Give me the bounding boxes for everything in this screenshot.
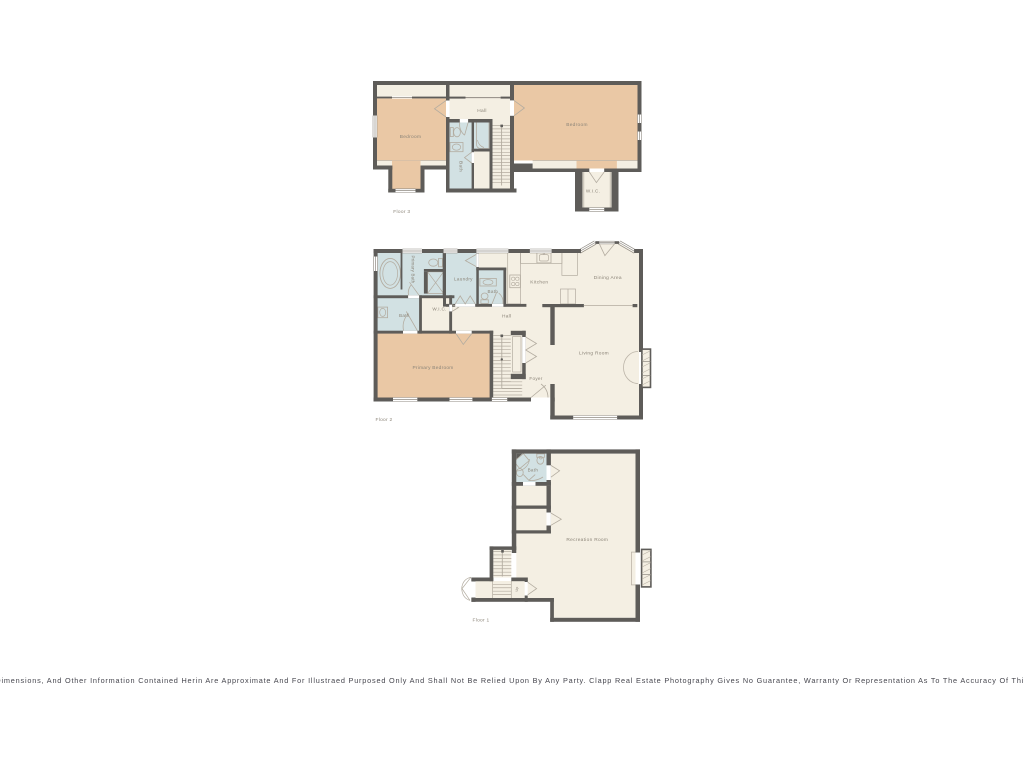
svg-text:W.I.C.: W.I.C. (432, 307, 446, 312)
svg-text:Foyer: Foyer (529, 376, 542, 381)
svg-text:Floor 1: Floor 1 (472, 617, 489, 623)
svg-text:Hall: Hall (477, 108, 486, 114)
svg-text:Primary Bath: Primary Bath (411, 256, 416, 284)
svg-text:Hall: Hall (502, 313, 511, 319)
svg-text:Bath: Bath (528, 467, 539, 472)
svg-text:W.I.C.: W.I.C. (586, 189, 600, 194)
svg-text:Bath: Bath (487, 289, 498, 294)
svg-text:Floor 3: Floor 3 (393, 209, 410, 215)
svg-text:Bedroom: Bedroom (400, 134, 422, 140)
svg-text:Bedroom: Bedroom (566, 122, 588, 128)
svg-text:Recreation Room: Recreation Room (566, 537, 608, 543)
svg-text:Laundry: Laundry (454, 277, 473, 282)
svg-text:Dining Area: Dining Area (594, 275, 622, 281)
svg-text:Up: Up (515, 587, 519, 592)
svg-text:Living Room: Living Room (579, 350, 609, 356)
svg-text:Bath: Bath (457, 161, 463, 172)
svg-text:Bath: Bath (399, 313, 410, 318)
svg-text:Kitchen: Kitchen (530, 279, 548, 285)
svg-text:Floor 2: Floor 2 (375, 417, 392, 423)
svg-text:Primary Bedroom: Primary Bedroom (412, 365, 453, 371)
